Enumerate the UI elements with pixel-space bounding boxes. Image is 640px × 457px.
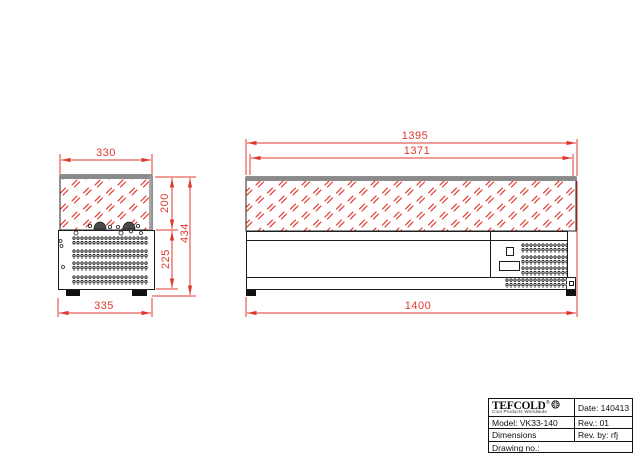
registered-mark: ®: [546, 401, 550, 406]
controller-display: [499, 261, 520, 271]
tefcold-globe-badge-icon: [551, 400, 560, 409]
side-foot-left: [66, 290, 80, 296]
dim-label-glass-height: 200: [159, 188, 171, 218]
dim-label-total-width: 1400: [393, 300, 443, 312]
front-body-divider-line: [490, 232, 491, 277]
side-vent-grille-band-3: [72, 261, 148, 271]
drawing-no-cell: Drawing no.:: [489, 442, 632, 453]
front-vent-grille-band-3: [521, 266, 567, 276]
dim-label-total-height: 434: [179, 218, 191, 248]
dim-label-base-width: 335: [86, 300, 122, 312]
drawing-sheet: 330 200 225 434 335 1395 1371 1400 TEFCO…: [0, 0, 640, 457]
dim-label-glass-inner-width: 1371: [392, 145, 442, 157]
front-vent-grille-band-1: [521, 243, 567, 253]
front-foot-right: [566, 290, 576, 296]
side-view-glass: [60, 175, 152, 230]
front-endcap-hole: [569, 281, 574, 286]
front-body-top-rail-line: [247, 240, 567, 241]
side-vent-grille-band-1: [72, 236, 148, 245]
front-view-glass: [246, 177, 576, 231]
dim-label-glass-width-side: 330: [88, 147, 124, 159]
rev-cell: Rev.: 01: [574, 417, 631, 428]
front-foot-left: [246, 290, 256, 296]
dim-label-glass-width-front: 1395: [390, 130, 440, 142]
dimension-and-glass-layer: [0, 0, 640, 457]
dim-label-body-height: 225: [160, 244, 172, 274]
power-switch: [506, 247, 514, 256]
front-vent-grille-band-2: [521, 255, 567, 265]
rev-by-cell: Rev. by: rfj: [574, 429, 631, 441]
tefcold-tagline: Cool Products Worldwide: [492, 410, 560, 414]
model-cell: Model: VK33-140: [489, 417, 574, 428]
side-foot-right: [132, 290, 147, 296]
side-vent-grille-band-4: [72, 275, 148, 285]
side-vent-grille-band-2: [72, 249, 148, 259]
dimensions-label-cell: Dimensions: [489, 429, 574, 441]
title-block: TEFCOLD ® Cool Products Worldwide Date: …: [488, 398, 633, 453]
title-block-logo-cell: TEFCOLD ® Cool Products Worldwide: [489, 399, 574, 416]
front-vent-grille-band-bottom: [505, 278, 567, 288]
date-cell: Date: 140413: [574, 399, 631, 416]
